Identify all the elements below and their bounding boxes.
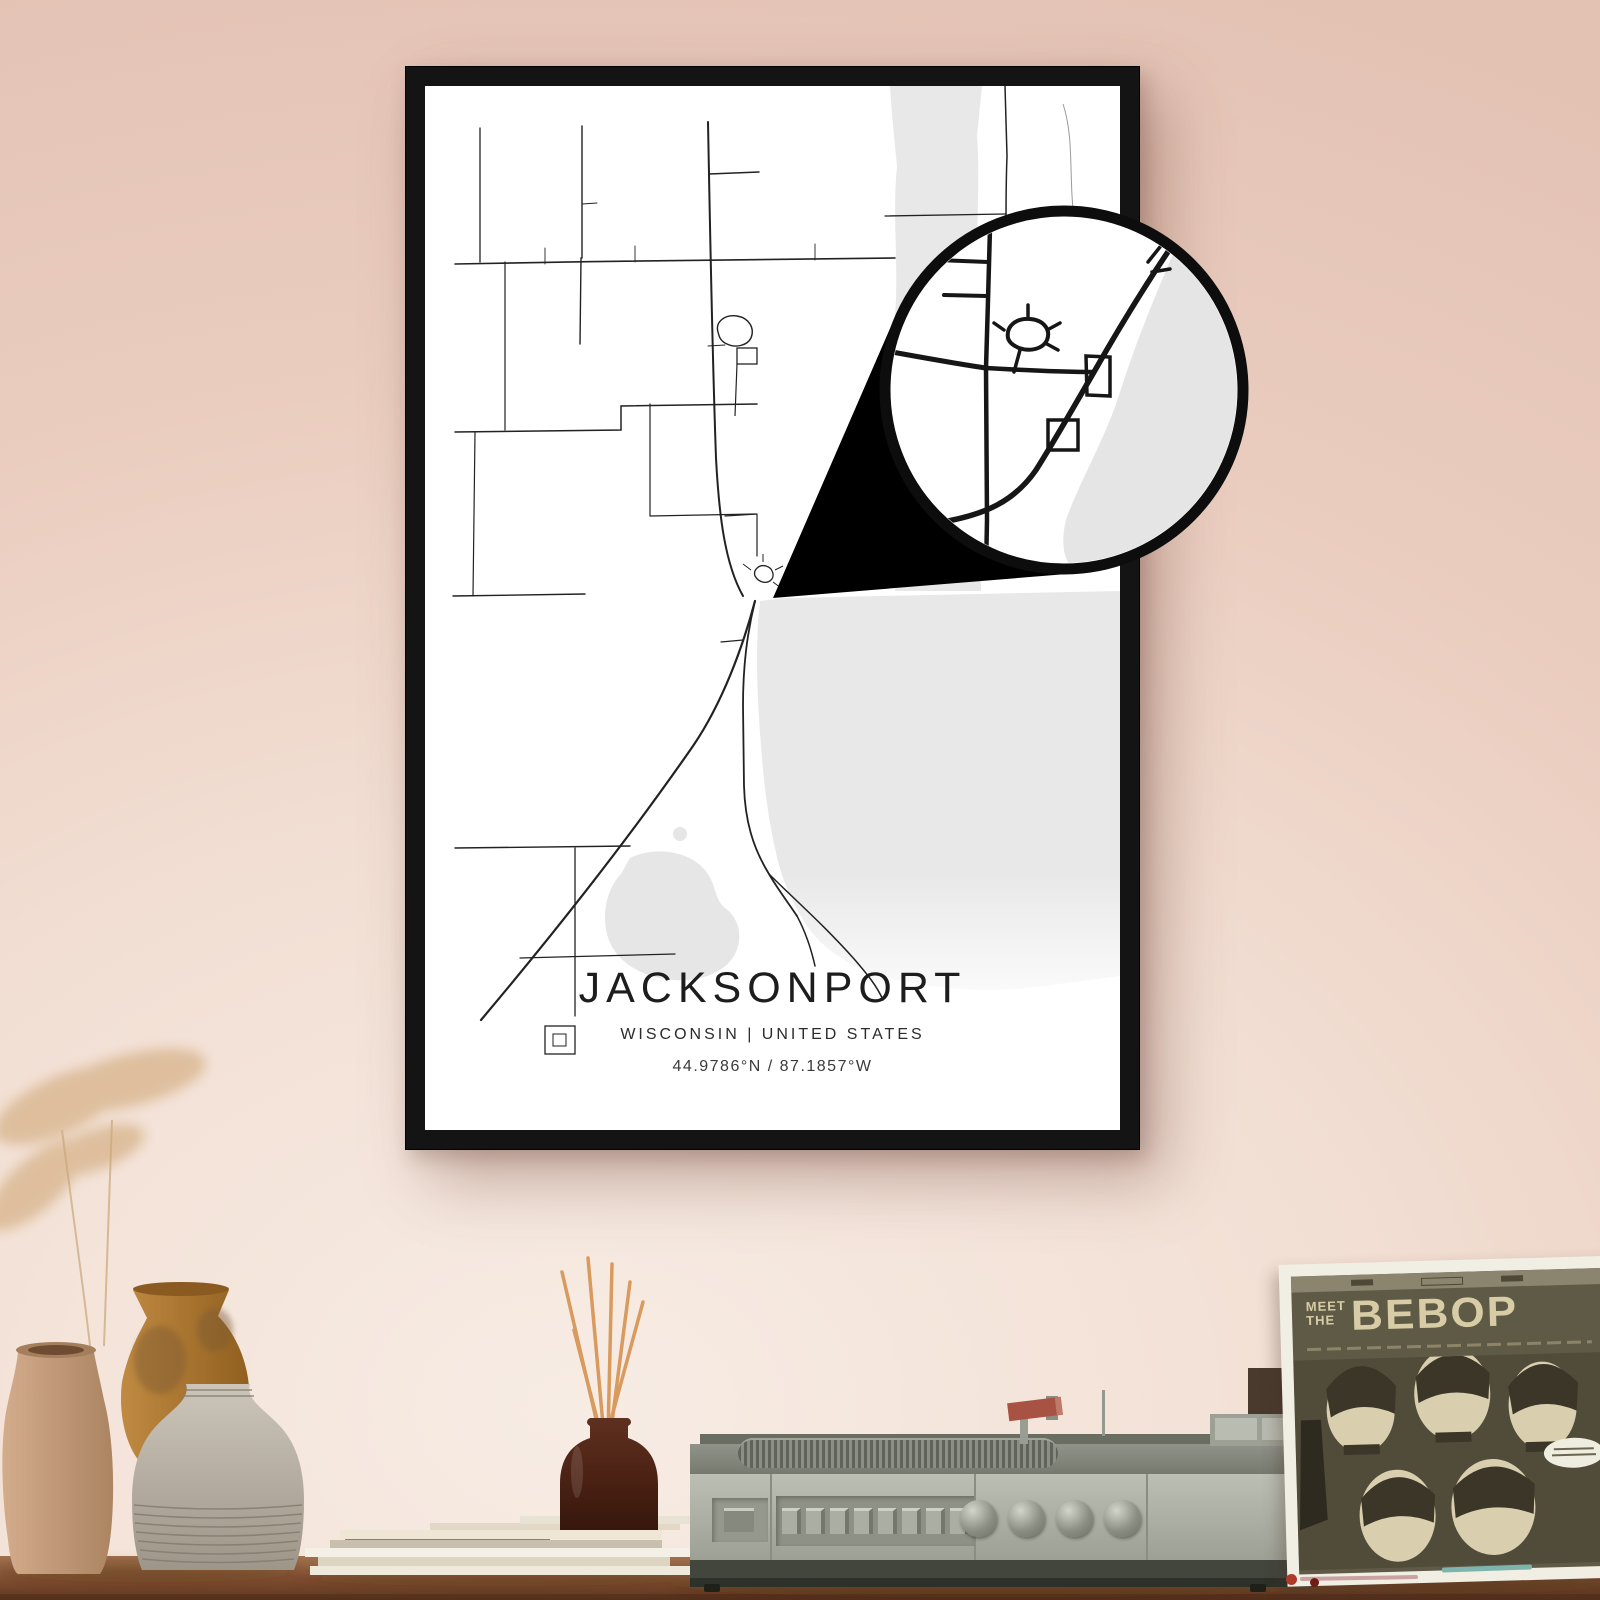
preset-keys <box>776 1496 974 1546</box>
room-scene: JACKSONPORT WISCONSIN | UNITED STATES 44… <box>0 0 1600 1600</box>
preset-key[interactable] <box>830 1508 849 1534</box>
red-cap <box>1286 1574 1297 1585</box>
preset-key[interactable] <box>782 1508 801 1534</box>
preset-key[interactable] <box>854 1508 873 1534</box>
preset-key[interactable] <box>926 1508 945 1534</box>
record-sleeve: MEET THE BEBOP <box>1279 1255 1600 1587</box>
album-title-bebop: BEBOP <box>1350 1294 1518 1333</box>
album-title: MEET THE BEBOP <box>1306 1291 1600 1334</box>
album-title-the: THE <box>1306 1312 1335 1328</box>
power-button[interactable] <box>724 1508 754 1532</box>
panel-seam <box>770 1474 772 1560</box>
antenna <box>1102 1390 1105 1436</box>
volume-knob[interactable] <box>960 1500 997 1537</box>
player-bottom-lip <box>690 1578 1315 1587</box>
preset-key[interactable] <box>902 1508 921 1534</box>
player-base <box>690 1560 1315 1580</box>
player-foot <box>704 1584 720 1592</box>
album-subtitle-line <box>1307 1340 1592 1351</box>
turntable-platter <box>738 1438 1058 1468</box>
album-cover: MEET THE BEBOP <box>1291 1268 1600 1575</box>
tan-vase <box>2 1342 113 1574</box>
record-player <box>690 1398 1315 1588</box>
tuning-knob[interactable] <box>1104 1500 1141 1537</box>
treble-knob[interactable] <box>1056 1500 1093 1537</box>
reed-diffuser <box>560 1258 658 1530</box>
bass-knob[interactable] <box>1008 1500 1045 1537</box>
player-foot <box>1250 1584 1266 1592</box>
preset-key[interactable] <box>806 1508 825 1534</box>
panel-seam <box>1146 1474 1148 1560</box>
dark-red-cap <box>1310 1578 1319 1587</box>
reed-sticks <box>562 1258 643 1438</box>
preset-key[interactable] <box>878 1508 897 1534</box>
album-art-faces <box>1293 1352 1600 1571</box>
